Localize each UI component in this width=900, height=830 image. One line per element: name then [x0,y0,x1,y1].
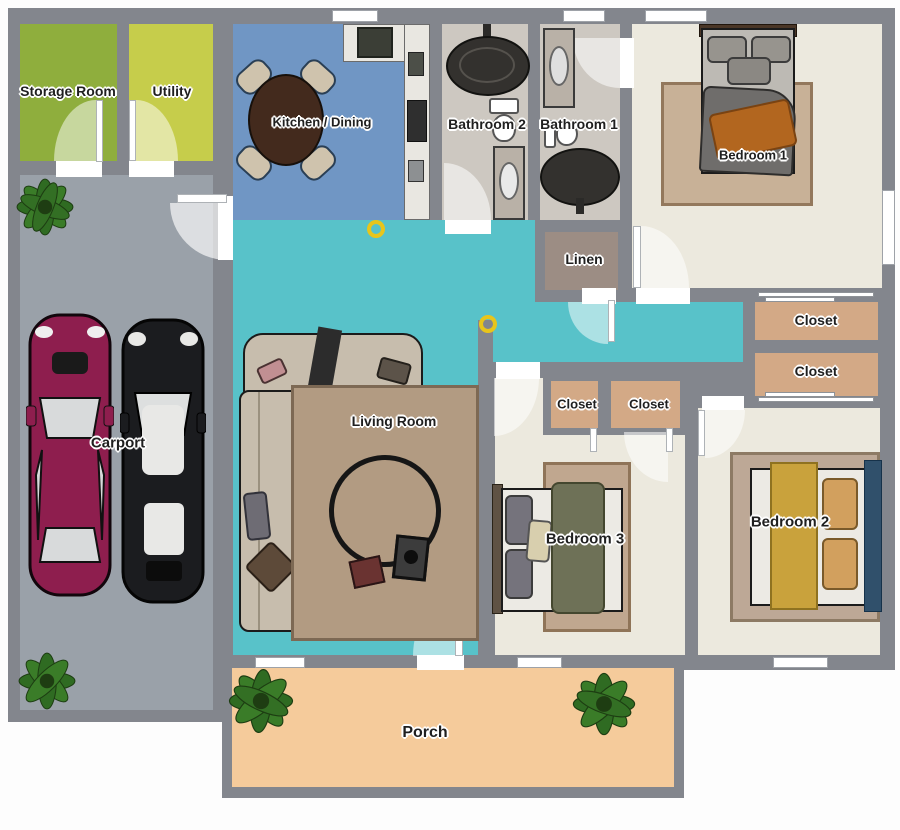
window-bedroom3-bottom [517,657,562,668]
door-gap-utility [129,161,174,177]
door-gap-porch [417,655,464,670]
door-gap-bathroom1 [620,38,634,88]
room-label-closet-hall-top: Closet [795,312,838,328]
sink-basin-icon [549,46,569,86]
room-label-utility: Utility [153,83,192,99]
door-gap-bedroom3 [496,362,540,379]
window-bedroom1-right [882,190,895,265]
door-leaf-closet-right [666,428,673,452]
sink-basin-icon [499,162,519,200]
room-label-bedroom2: Bedroom 2 [751,514,829,531]
kitchen-appliance-icon [408,52,424,76]
door-leaf-bedroom1 [633,226,641,288]
door-gap-bathroom2 [445,220,491,234]
door-leaf-linen [608,300,615,342]
bathtub-inner [459,47,515,83]
room-label-bedroom3: Bedroom 3 [546,531,624,548]
plant [14,176,76,238]
floor-hall-mid [493,220,535,362]
room-label-carport: Carport [91,435,145,452]
floor-plan: Storage Room Utility Kitchen / Dining Ba… [0,0,900,830]
door-gap-bedroom1 [636,288,690,304]
car-maroon [26,310,114,600]
room-label-closet-hall-bottom: Closet [795,363,838,379]
door-leaf-bedroom2 [698,410,705,456]
door-leaf-utility [129,100,136,161]
window-bedroom1-top [645,10,707,22]
door-gap-storage [56,161,102,177]
room-label-storage: Storage Room [20,83,116,99]
room-label-bathroom1: Bathroom 1 [540,116,618,132]
pillow [727,57,771,85]
pillow [822,538,858,590]
room-label-porch: Porch [402,724,447,742]
plant [226,664,296,738]
room-label-linen: Linen [565,251,602,267]
bed-headboard [864,460,882,612]
room-label-bedroom1: Bedroom 1 [719,148,787,163]
room-label-closet-bed3-left: Closet [557,397,597,412]
detector-icon [367,220,385,238]
room-label-kitchen: Kitchen / Dining [273,115,372,130]
kitchen-range-icon [407,100,427,142]
bath-faucet-icon [576,198,584,214]
plant [570,664,638,744]
room-label-living: Living Room [352,413,437,429]
window-kitchen-top [332,10,378,22]
window-bathroom1-top [563,10,605,22]
detector-icon [479,315,497,333]
plant [16,650,78,712]
car-black [120,315,206,607]
sliding-door-closet-top-2 [765,297,835,302]
room-label-bathroom2: Bathroom 2 [448,116,526,132]
sliding-door-closet-bottom-2 [765,392,835,397]
toilet-icon [489,98,519,114]
stove-icon [357,27,393,58]
door-leaf-storage [96,100,103,162]
bed-blanket [770,462,818,610]
room-label-closet-bed3-right: Closet [629,397,669,412]
sliding-door-closet-bottom [758,397,874,402]
door-gap-bedroom2 [702,396,744,410]
kitchen-sink-icon [408,160,424,182]
door-leaf-closet-left [590,428,597,452]
window-bedroom2-bottom [773,657,828,668]
pillow [243,491,272,541]
bed-blanket [551,482,605,614]
floor-hall-right [535,302,743,362]
door-leaf-carport-entry [177,194,227,203]
wall-living-bed3 [478,320,493,668]
